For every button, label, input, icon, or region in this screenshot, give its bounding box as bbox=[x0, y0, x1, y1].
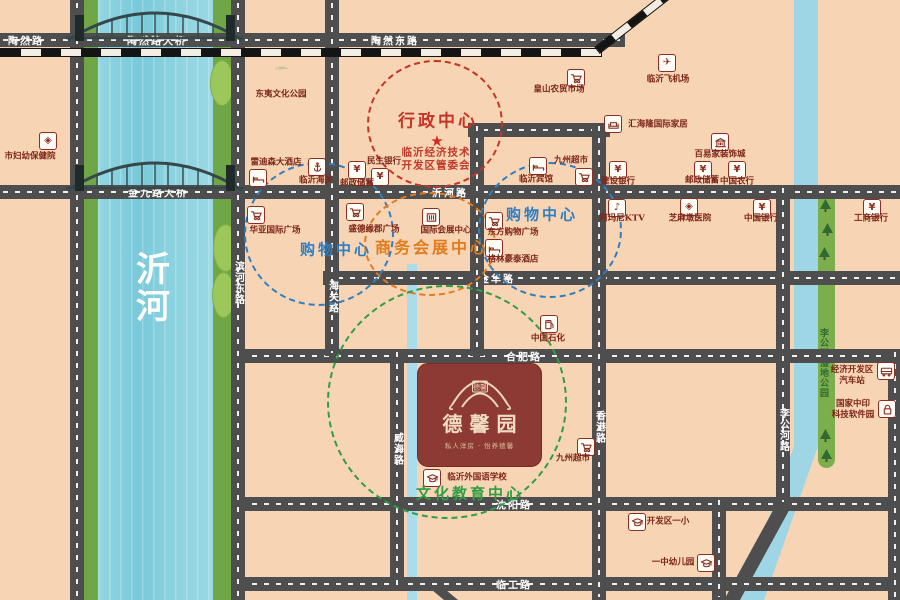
poi-label: 汇海隆国际家居 bbox=[628, 119, 688, 130]
poi-label: 格林豪泰酒店 bbox=[487, 254, 538, 265]
mall-icon bbox=[711, 133, 729, 151]
road-centerline bbox=[240, 583, 897, 585]
school-icon bbox=[628, 513, 646, 531]
poi-label: 工商银行 bbox=[854, 213, 888, 224]
zone-label: 行政中心 bbox=[398, 107, 478, 132]
road-centerline bbox=[240, 503, 897, 505]
poi-label: 阿玛尼KTV bbox=[599, 213, 645, 224]
location-map: 沂 河 李公河湿地公园 德馨 德馨园 私人 bbox=[0, 0, 900, 600]
poi-label: 九州超市 bbox=[556, 453, 590, 464]
road-v-8 bbox=[888, 349, 900, 600]
bus-icon bbox=[877, 362, 895, 380]
road-label: 滨河东路 bbox=[231, 261, 246, 305]
hospital-icon: ◈ bbox=[39, 132, 57, 150]
road-v-6: 李公河路 bbox=[776, 185, 790, 505]
poi-label: 华亚国际广场 bbox=[249, 225, 300, 236]
poi-label: 芝麻墩医院 bbox=[669, 213, 712, 224]
project-block-dexinyuan: 德馨 德馨园 私人洋房 · 怡养德馨 bbox=[417, 363, 542, 467]
poi-label: 临沂海关 bbox=[299, 175, 333, 186]
wetland-park-label: 李公河湿地公园 bbox=[817, 328, 830, 398]
road-h-5: 临工路 bbox=[237, 577, 900, 591]
poi-label: 雷迪森大酒店 bbox=[250, 157, 301, 168]
tree-icon bbox=[820, 448, 833, 467]
poi-label: 临沂外国语学校 bbox=[447, 472, 507, 483]
cart-icon bbox=[346, 203, 364, 221]
cart-icon bbox=[575, 168, 593, 186]
yen-icon: ¥ bbox=[348, 161, 366, 179]
road-centerline bbox=[718, 500, 720, 597]
jinjiu-bridge bbox=[62, 152, 248, 196]
zone-label: 购物中心 bbox=[506, 204, 578, 225]
poi-label: 临沂宾馆 bbox=[519, 174, 553, 185]
road-label: 陶然东路 bbox=[371, 33, 419, 48]
road-label: 临工路 bbox=[496, 577, 532, 592]
road-h-4: 沈阳路 bbox=[237, 497, 900, 511]
road-v-7 bbox=[712, 497, 726, 600]
sofa-icon bbox=[604, 115, 622, 133]
mountains-icon bbox=[276, 62, 289, 75]
poi-label: 皇山农贸市场 bbox=[533, 84, 584, 95]
tree-icon bbox=[821, 222, 834, 241]
tree-icon bbox=[819, 198, 832, 217]
road-label: 李公河路 bbox=[776, 408, 791, 452]
bed-icon bbox=[249, 169, 267, 187]
zone-sub-label: 临沂经济技术开发区管委会 bbox=[402, 146, 471, 171]
project-tagline: 私人洋房 · 怡养德馨 bbox=[445, 440, 514, 450]
taoran-bridge bbox=[62, 2, 248, 46]
zone-label: 购物中心 bbox=[300, 239, 372, 260]
expo-icon bbox=[422, 208, 440, 226]
poi-label: 九州超市 bbox=[554, 155, 588, 166]
poi-label: 盛德缘郡广场 bbox=[348, 224, 399, 235]
river-char: 沂 bbox=[133, 252, 173, 289]
poi-label: 百易家装饰城 bbox=[694, 149, 745, 160]
road-v-0 bbox=[70, 0, 84, 600]
plane-icon: ✈ bbox=[658, 54, 676, 72]
road-centerline bbox=[894, 352, 896, 597]
poi-label: 临沂飞机场 bbox=[647, 74, 690, 85]
lock-icon bbox=[878, 400, 896, 418]
road-label: 陶然路 bbox=[8, 33, 44, 48]
poi-label: 东方购物广场 bbox=[487, 227, 538, 238]
poi-label: 一中幼儿园 bbox=[652, 557, 695, 568]
poi-label: 建设银行 bbox=[601, 176, 635, 187]
tree-icon bbox=[819, 428, 832, 447]
school-icon bbox=[423, 469, 441, 487]
poi-label: 国际会展中心 bbox=[420, 225, 471, 236]
poi-label: 经济开发区汽车站 bbox=[831, 365, 874, 387]
railway bbox=[0, 48, 602, 57]
poi-label: 开发区一小 bbox=[647, 516, 690, 527]
railway-diagonal bbox=[594, 0, 674, 54]
poi-label: 市妇幼保健院 bbox=[4, 151, 55, 162]
school-icon bbox=[697, 554, 715, 572]
poi-label: 邮政储蓄 bbox=[340, 178, 374, 189]
poi-label: 中国农行 bbox=[720, 176, 754, 187]
bed-icon bbox=[529, 157, 547, 175]
gas-icon bbox=[540, 315, 558, 333]
river-name: 沂 河 bbox=[133, 252, 173, 327]
road-v-1: 滨河东路 bbox=[231, 0, 245, 600]
river-char: 河 bbox=[133, 289, 173, 326]
poi-label: 国家中印科技软件园 bbox=[832, 399, 875, 421]
poi-label: 中国银行 bbox=[744, 213, 778, 224]
river-west-bank bbox=[84, 0, 98, 600]
road-centerline bbox=[782, 188, 784, 502]
poi-label: 邮政储蓄 bbox=[685, 175, 719, 186]
tree-icon bbox=[818, 246, 831, 265]
anchor-icon bbox=[308, 158, 326, 176]
road-centerline bbox=[76, 3, 78, 597]
poi-label: 东夷文化公园 bbox=[255, 89, 306, 100]
fan-logo: 德馨 bbox=[441, 368, 519, 410]
zone-label: 商务会展中心 bbox=[375, 234, 489, 258]
cart-icon bbox=[247, 206, 265, 224]
project-name: 德馨园 bbox=[436, 408, 524, 437]
svg-text:德馨: 德馨 bbox=[473, 383, 487, 392]
poi-label: 民生银行 bbox=[367, 156, 401, 167]
poi-label: 中国石化 bbox=[531, 333, 565, 344]
